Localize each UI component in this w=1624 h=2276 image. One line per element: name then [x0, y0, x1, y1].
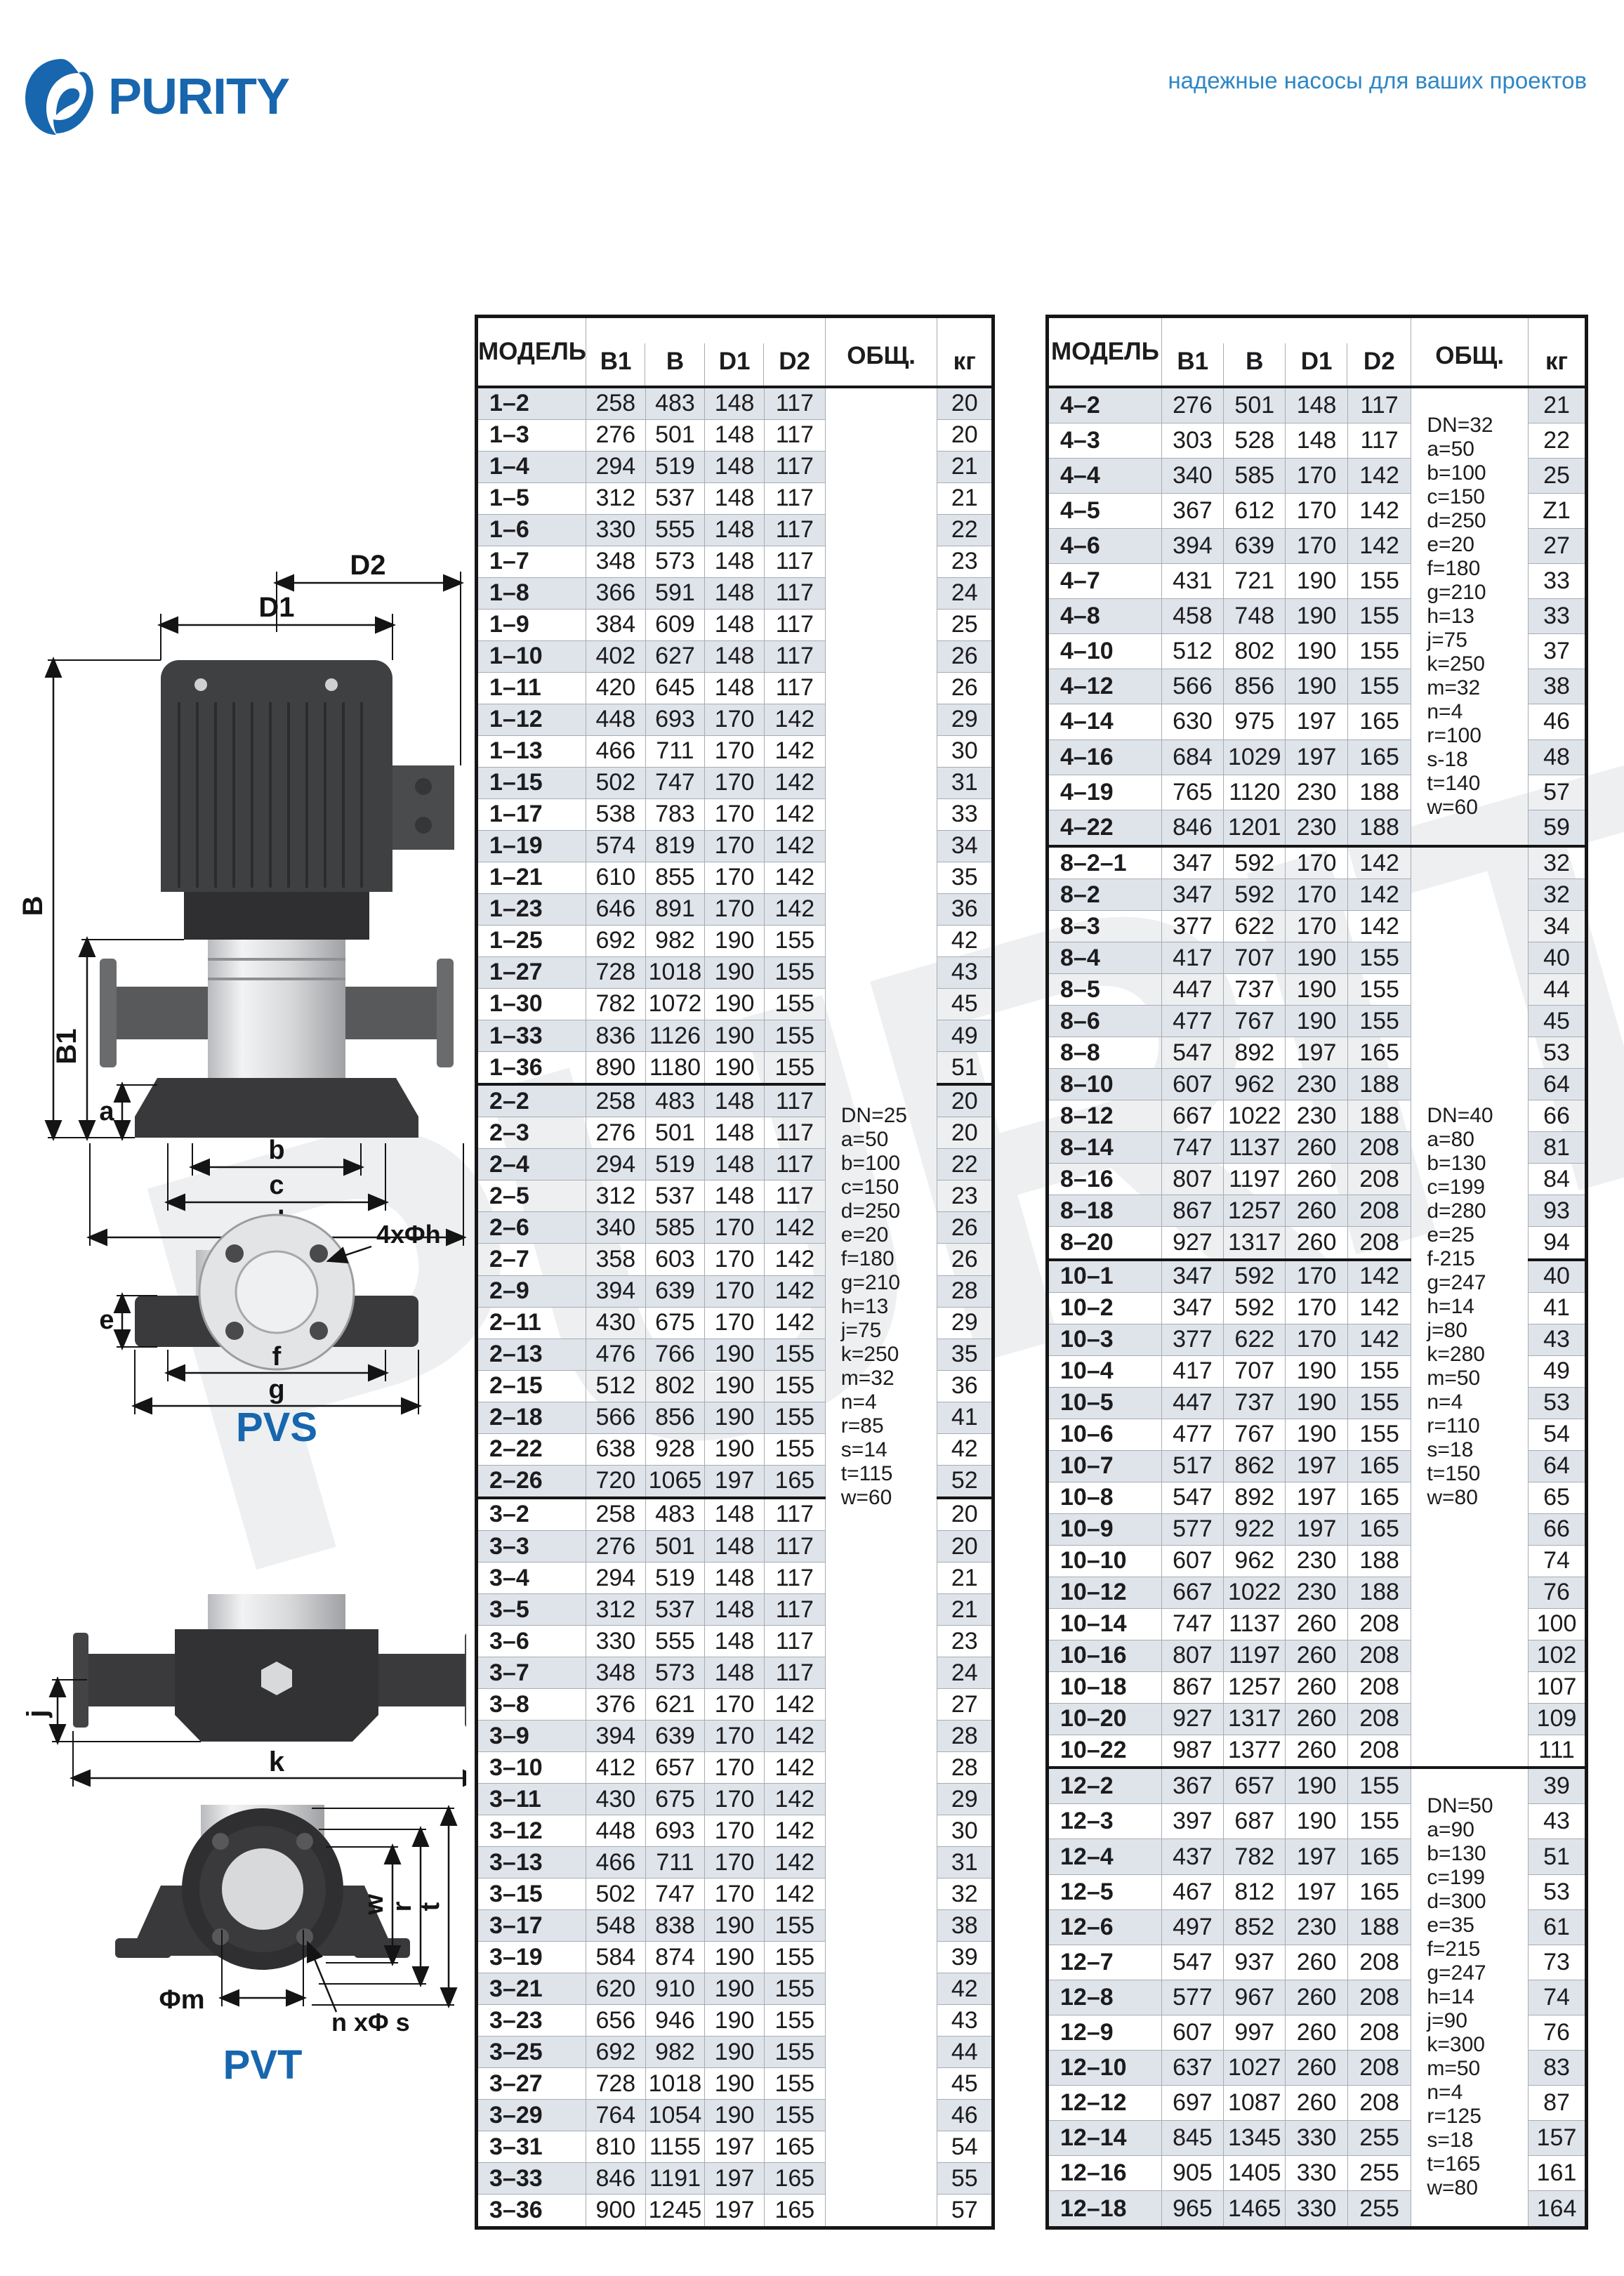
weight-cell: 20 [937, 1531, 993, 1563]
model-cell: 8–14 [1048, 1132, 1162, 1164]
d2-cell: 142 [1347, 494, 1411, 529]
d2-cell: 117 [764, 419, 825, 451]
d1-cell: 190 [705, 1910, 765, 1942]
weight-cell: 41 [937, 1402, 993, 1433]
model-cell: 4–16 [1048, 739, 1162, 775]
b-cell: 1137 [1224, 1608, 1286, 1640]
weight-cell: 44 [1529, 974, 1587, 1006]
d1-cell: 148 [705, 1498, 765, 1531]
d1-cell: 170 [705, 1307, 765, 1338]
b-cell: 838 [645, 1910, 705, 1942]
note-line: h=14 [1427, 1295, 1528, 1319]
note-line: t=150 [1427, 1462, 1528, 1486]
b-cell: 592 [1224, 879, 1286, 911]
weight-cell: 30 [937, 735, 993, 767]
column-header-model: МОДЕЛЬ [1048, 317, 1162, 387]
column-header-b: В [1224, 317, 1286, 387]
d1-cell: 148 [705, 1594, 765, 1626]
b1-cell: 312 [586, 482, 646, 514]
b1-cell: 276 [586, 1117, 646, 1149]
b1-cell: 430 [586, 1307, 646, 1338]
weight-cell: 21 [1529, 387, 1587, 423]
d2-cell: 165 [764, 2163, 825, 2195]
weight-cell: 43 [1529, 1324, 1587, 1355]
weight-cell: 53 [1529, 1387, 1587, 1419]
dim-label-b1: B1 [51, 1028, 82, 1064]
weight-cell: 84 [1529, 1164, 1587, 1195]
b-cell: 962 [1224, 1069, 1286, 1100]
note-line: r=110 [1427, 1414, 1528, 1438]
d2-cell: 155 [1347, 1419, 1411, 1450]
weight-cell: 45 [937, 988, 993, 1020]
d1-cell: 190 [705, 2068, 765, 2100]
d2-cell: 142 [764, 767, 825, 798]
b-cell: 891 [645, 893, 705, 925]
weight-cell: 31 [937, 1847, 993, 1879]
weight-cell: 65 [1529, 1482, 1587, 1513]
b-cell: 555 [645, 1626, 705, 1657]
b-cell: 1345 [1224, 2120, 1286, 2155]
b1-cell: 548 [586, 1910, 646, 1942]
b1-cell: 276 [1161, 387, 1223, 423]
table-row: 12–2367657190155DN=50a=90b=130c=199d=300… [1048, 1768, 1587, 1804]
note-line: e=35 [1427, 1914, 1528, 1938]
d1-cell: 148 [705, 1117, 765, 1149]
weight-cell: 54 [937, 2131, 993, 2163]
d1-cell: 230 [1286, 1909, 1347, 1945]
d1-cell: 190 [1286, 1804, 1347, 1839]
d1-cell: 170 [705, 830, 765, 862]
d2-cell: 155 [764, 1973, 825, 2005]
weight-cell: 66 [1529, 1513, 1587, 1545]
b-cell: 537 [645, 1180, 705, 1212]
dim-label-d2: D2 [350, 555, 385, 581]
b1-cell: 347 [1161, 1292, 1223, 1324]
b-cell: 555 [645, 514, 705, 546]
d2-cell: 117 [764, 1084, 825, 1117]
model-cell: 4–6 [1048, 529, 1162, 564]
weight-cell: 37 [1529, 634, 1587, 669]
d2-cell: 142 [764, 1307, 825, 1338]
b-cell: 592 [1224, 1292, 1286, 1324]
b1-cell: 607 [1161, 1069, 1223, 1100]
weight-cell: 61 [1529, 1909, 1587, 1945]
b-cell: 711 [645, 1847, 705, 1879]
b1-cell: 348 [586, 1657, 646, 1689]
common-dims-notes: DN=25a=50b=100c=150d=250e=20f=180g=210h=… [825, 387, 937, 2228]
weight-cell: 36 [937, 1370, 993, 1402]
b-cell: 483 [645, 387, 705, 420]
b1-cell: 448 [586, 1815, 646, 1847]
b1-cell: 294 [586, 451, 646, 482]
weight-cell: 22 [937, 1149, 993, 1180]
model-cell: 2–7 [477, 1244, 586, 1275]
model-cell: 10–20 [1048, 1703, 1162, 1735]
d1-cell: 197 [705, 1465, 765, 1498]
model-cell: 3–9 [477, 1721, 586, 1752]
model-cell: 1–6 [477, 514, 586, 546]
note-line: a=90 [1427, 1818, 1528, 1842]
b1-cell: 276 [586, 419, 646, 451]
note-line: a=80 [1427, 1128, 1528, 1152]
model-cell: 12–7 [1048, 1945, 1162, 1980]
b1-cell: 867 [1161, 1671, 1223, 1703]
weight-cell: 32 [1529, 846, 1587, 879]
model-cell: 4–3 [1048, 423, 1162, 458]
model-cell: 1–11 [477, 672, 586, 704]
weight-cell: 59 [1529, 810, 1587, 846]
d2-cell: 142 [764, 735, 825, 767]
weight-cell: 34 [1529, 911, 1587, 942]
d1-cell: 190 [1286, 1768, 1347, 1804]
b-cell: 537 [645, 482, 705, 514]
b-cell: 501 [645, 1117, 705, 1149]
d1-cell: 148 [705, 640, 765, 672]
d2-cell: 188 [1347, 1545, 1411, 1577]
dim-label-t: t [416, 1902, 445, 1911]
d2-cell: 142 [764, 830, 825, 862]
d1-cell: 190 [705, 988, 765, 1020]
model-cell: 3–17 [477, 1910, 586, 1942]
weight-cell: 87 [1529, 2085, 1587, 2120]
model-cell: 3–3 [477, 1531, 586, 1563]
b-cell: 747 [645, 767, 705, 798]
model-cell: 8–10 [1048, 1069, 1162, 1100]
b1-cell: 845 [1161, 2120, 1223, 2155]
weight-cell: 36 [937, 893, 993, 925]
note-line: m=50 [1427, 1367, 1528, 1390]
d1-cell: 190 [1286, 1006, 1347, 1037]
note-line: s-18 [1427, 748, 1528, 772]
weight-cell: 49 [1529, 1355, 1587, 1387]
b-cell: 501 [1224, 387, 1286, 423]
weight-cell: 44 [937, 2037, 993, 2068]
b-cell: 1191 [645, 2163, 705, 2195]
dim-label-bolt-holes: 4xΦh [376, 1220, 441, 1249]
b1-cell: 867 [1161, 1195, 1223, 1227]
weight-cell: 51 [1529, 1839, 1587, 1874]
b1-cell: 807 [1161, 1640, 1223, 1671]
d2-cell: 208 [1347, 2015, 1411, 2050]
weight-cell: 38 [1529, 669, 1587, 704]
b1-cell: 347 [1161, 1260, 1223, 1293]
d1-cell: 230 [1286, 1100, 1347, 1132]
b-cell: 501 [645, 1531, 705, 1563]
d2-cell: 255 [1347, 2120, 1411, 2155]
b-cell: 1120 [1224, 775, 1286, 810]
weight-cell: 54 [1529, 1419, 1587, 1450]
model-cell: 1–19 [477, 830, 586, 862]
d1-cell: 190 [705, 1433, 765, 1465]
b1-cell: 547 [1161, 1482, 1223, 1513]
d1-cell: 190 [705, 1973, 765, 2005]
model-cell: 8–18 [1048, 1195, 1162, 1227]
weight-cell: 48 [1529, 739, 1587, 775]
d2-cell: 142 [1347, 459, 1411, 494]
model-cell: 8–20 [1048, 1227, 1162, 1260]
weight-cell: 102 [1529, 1640, 1587, 1671]
b1-cell: 656 [586, 2005, 646, 2037]
note-line: r=100 [1427, 724, 1528, 748]
d2-cell: 117 [764, 1626, 825, 1657]
model-cell: 8–3 [1048, 911, 1162, 942]
weight-cell: 23 [937, 1626, 993, 1657]
d1-cell: 190 [705, 2005, 765, 2037]
d2-cell: 208 [1347, 1195, 1411, 1227]
d1-cell: 230 [1286, 1069, 1347, 1100]
weight-cell: 20 [937, 387, 993, 420]
model-cell: 8–4 [1048, 942, 1162, 974]
d2-cell: 155 [764, 925, 825, 956]
note-line: k=250 [841, 1343, 937, 1367]
d2-cell: 165 [1347, 1513, 1411, 1545]
d2-cell: 208 [1347, 1945, 1411, 1980]
b-cell: 819 [645, 830, 705, 862]
d2-cell: 117 [764, 1498, 825, 1531]
weight-cell: 20 [937, 1084, 993, 1117]
d2-cell: 155 [1347, 634, 1411, 669]
model-cell: 4–5 [1048, 494, 1162, 529]
b1-cell: 584 [586, 1942, 646, 1973]
note-line: m=32 [1427, 676, 1528, 700]
model-cell: 2–6 [477, 1212, 586, 1244]
weight-cell: 74 [1529, 1545, 1587, 1577]
b1-cell: 448 [586, 704, 646, 735]
b-cell: 1155 [645, 2131, 705, 2163]
b1-cell: 402 [586, 640, 646, 672]
b1-cell: 258 [586, 1084, 646, 1117]
b1-cell: 620 [586, 1973, 646, 2005]
b-cell: 782 [1224, 1839, 1286, 1874]
b-cell: 1018 [645, 956, 705, 988]
weight-cell: 111 [1529, 1735, 1587, 1768]
weight-cell: 27 [937, 1689, 993, 1721]
model-cell: 1–9 [477, 609, 586, 640]
b1-cell: 502 [586, 1879, 646, 1910]
d2-cell: 155 [764, 956, 825, 988]
weight-cell: 57 [937, 2195, 993, 2228]
b1-cell: 367 [1161, 494, 1223, 529]
model-cell: 12–14 [1048, 2120, 1162, 2155]
column-header-b: В [645, 317, 705, 387]
b1-cell: 447 [1161, 974, 1223, 1006]
note-line: d=250 [841, 1199, 937, 1223]
b-cell: 519 [645, 1149, 705, 1180]
weight-cell: 157 [1529, 2120, 1587, 2155]
d1-cell: 190 [705, 1338, 765, 1370]
note-line: DN=40 [1427, 1104, 1528, 1128]
b1-cell: 728 [586, 956, 646, 988]
model-cell: 10–1 [1048, 1260, 1162, 1293]
d2-cell: 155 [1347, 564, 1411, 599]
weight-cell: 42 [937, 925, 993, 956]
d2-cell: 155 [764, 1370, 825, 1402]
b1-cell: 566 [1161, 669, 1223, 704]
header-tagline: надежные насосы для ваших проектов [1168, 67, 1587, 94]
weight-cell: 28 [937, 1752, 993, 1784]
note-line: h=14 [1427, 1985, 1528, 2009]
b-cell: 1072 [645, 988, 705, 1020]
b-cell: 766 [645, 1338, 705, 1370]
model-cell: 10–10 [1048, 1545, 1162, 1577]
column-header-b1: В1 [586, 317, 646, 387]
b1-cell: 466 [586, 1847, 646, 1879]
d2-cell: 208 [1347, 1980, 1411, 2015]
d2-cell: 117 [764, 387, 825, 420]
b1-cell: 607 [1161, 2015, 1223, 2050]
weight-cell: 25 [937, 609, 993, 640]
model-cell: 3–36 [477, 2195, 586, 2228]
weight-cell: 41 [1529, 1292, 1587, 1324]
model-cell: 3–5 [477, 1594, 586, 1626]
b-cell: 687 [1224, 1804, 1286, 1839]
model-cell: 10–2 [1048, 1292, 1162, 1324]
d2-cell: 117 [764, 546, 825, 577]
note-line: c=150 [1427, 485, 1528, 509]
note-line: k=300 [1427, 2033, 1528, 2057]
d2-cell: 142 [764, 1784, 825, 1815]
model-cell: 2–9 [477, 1275, 586, 1307]
b-cell: 707 [1224, 1355, 1286, 1387]
b-cell: 737 [1224, 1387, 1286, 1419]
model-cell: 12–9 [1048, 2015, 1162, 2050]
note-line: f=180 [1427, 557, 1528, 581]
note-line: j=75 [841, 1319, 937, 1343]
d2-cell: 117 [764, 609, 825, 640]
d1-cell: 148 [705, 1149, 765, 1180]
note-line: b=130 [1427, 1152, 1528, 1176]
d2-cell: 142 [764, 1275, 825, 1307]
weight-cell: 24 [937, 1657, 993, 1689]
dim-label-r: r [388, 1901, 417, 1912]
model-cell: 1–8 [477, 577, 586, 609]
dimensions-table-left: МОДЕЛЬВ1ВD1D2ОБЩ.кг1–2258483148117DN=25a… [475, 315, 995, 2230]
b1-cell: 412 [586, 1752, 646, 1784]
model-cell: 8–12 [1048, 1100, 1162, 1132]
model-cell: 1–27 [477, 956, 586, 988]
model-cell: 10–3 [1048, 1324, 1162, 1355]
column-header-d2: D2 [1347, 317, 1411, 387]
b1-cell: 430 [586, 1784, 646, 1815]
model-cell: 8–2–1 [1048, 846, 1162, 879]
d2-cell: 155 [1347, 669, 1411, 704]
b1-cell: 667 [1161, 1577, 1223, 1608]
b1-cell: 397 [1161, 1804, 1223, 1839]
weight-cell: 22 [937, 514, 993, 546]
model-cell: 3–27 [477, 2068, 586, 2100]
weight-cell: 64 [1529, 1450, 1587, 1482]
model-cell: 3–6 [477, 1626, 586, 1657]
b1-cell: 574 [586, 830, 646, 862]
b1-cell: 312 [586, 1594, 646, 1626]
model-cell: 8–2 [1048, 879, 1162, 911]
note-line: j=90 [1427, 2009, 1528, 2033]
b-cell: 802 [645, 1370, 705, 1402]
b1-cell: 458 [1161, 599, 1223, 634]
d2-cell: 165 [1347, 704, 1411, 739]
b1-cell: 358 [586, 1244, 646, 1275]
b-cell: 1029 [1224, 739, 1286, 775]
weight-cell: 109 [1529, 1703, 1587, 1735]
note-line: n=4 [1427, 2081, 1528, 2105]
b-cell: 707 [1224, 942, 1286, 974]
model-cell: 10–18 [1048, 1671, 1162, 1703]
b-cell: 675 [645, 1784, 705, 1815]
d1-cell: 260 [1286, 2085, 1347, 2120]
weight-cell: 28 [937, 1721, 993, 1752]
note-line: b=100 [1427, 461, 1528, 485]
b1-cell: 394 [1161, 529, 1223, 564]
weight-cell: 23 [937, 1180, 993, 1212]
weight-cell: 24 [937, 577, 993, 609]
weight-cell: 94 [1529, 1227, 1587, 1260]
d2-cell: 188 [1347, 1069, 1411, 1100]
note-line: t=115 [841, 1462, 937, 1486]
model-cell: 1–30 [477, 988, 586, 1020]
d2-cell: 155 [1347, 1355, 1411, 1387]
d1-cell: 190 [1286, 564, 1347, 599]
b-cell: 747 [645, 1879, 705, 1910]
d1-cell: 260 [1286, 1945, 1347, 1980]
model-cell: 12–5 [1048, 1874, 1162, 1909]
weight-cell: 64 [1529, 1069, 1587, 1100]
model-cell: 2–22 [477, 1433, 586, 1465]
b1-cell: 692 [586, 2037, 646, 2068]
b1-cell: 646 [586, 893, 646, 925]
b1-cell: 637 [1161, 2050, 1223, 2085]
model-cell: 12–8 [1048, 1980, 1162, 2015]
d1-cell: 190 [1286, 1387, 1347, 1419]
b1-cell: 747 [1161, 1608, 1223, 1640]
note-line: g=210 [1427, 581, 1528, 605]
note-line: w=80 [1427, 2176, 1528, 2200]
b1-cell: 807 [1161, 1164, 1223, 1195]
weight-cell: 40 [1529, 942, 1587, 974]
dim-label-bolt-circle: n xΦ s [331, 2008, 410, 2037]
b1-cell: 303 [1161, 423, 1223, 458]
dim-label-m: Φm [159, 1985, 205, 2015]
note-line: t=140 [1427, 772, 1528, 796]
d2-cell: 142 [764, 1879, 825, 1910]
b1-cell: 330 [586, 514, 646, 546]
d2-cell: 208 [1347, 1735, 1411, 1768]
note-line: w=60 [841, 1486, 937, 1510]
note-line: a=50 [1427, 438, 1528, 461]
d2-cell: 208 [1347, 1703, 1411, 1735]
common-dims-notes: DN=50a=90b=130c=199d=300e=35f=215g=247h=… [1411, 1768, 1529, 2228]
model-cell: 1–17 [477, 798, 586, 830]
d2-cell: 155 [1347, 1768, 1411, 1804]
note-line: a=50 [841, 1128, 937, 1152]
b-cell: 856 [645, 1402, 705, 1433]
model-cell: 4–14 [1048, 704, 1162, 739]
d2-cell: 117 [764, 1180, 825, 1212]
d2-cell: 188 [1347, 775, 1411, 810]
b1-cell: 258 [586, 1498, 646, 1531]
b1-cell: 347 [1161, 879, 1223, 911]
model-cell: 12–3 [1048, 1804, 1162, 1839]
weight-cell: 29 [937, 1784, 993, 1815]
b-cell: 573 [645, 546, 705, 577]
d2-cell: 188 [1347, 1100, 1411, 1132]
d1-cell: 190 [705, 1020, 765, 1052]
b1-cell: 512 [586, 1370, 646, 1402]
d2-cell: 165 [764, 2195, 825, 2228]
model-cell: 10–6 [1048, 1419, 1162, 1450]
b-cell: 1197 [1224, 1640, 1286, 1671]
note-line: f=215 [1427, 1938, 1528, 1961]
d1-cell: 148 [705, 1531, 765, 1563]
